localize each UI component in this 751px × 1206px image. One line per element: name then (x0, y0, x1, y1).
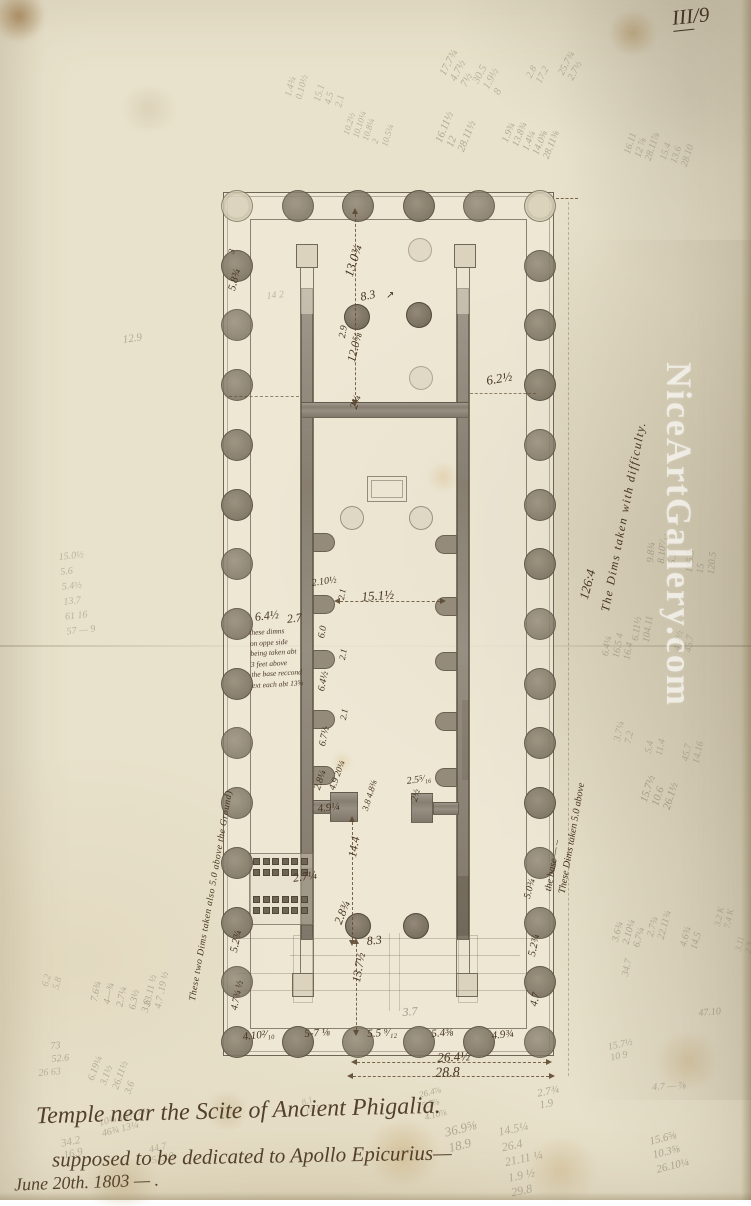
ink-annotation-text: 6.4½ (254, 607, 280, 625)
pencil-note: 1.9¾13.8¾1.4¼14.0⅜28.11⅜ (500, 113, 562, 161)
ink-annotation-text: 2.10½ (311, 575, 337, 589)
ink-annotation-text: 28.8 (435, 1065, 460, 1082)
pencil-note: 30.51.9½8 (470, 61, 512, 97)
ink-annotation: 15.1½ (361, 587, 395, 605)
ink-annotation-text: 6.7½ (317, 725, 332, 747)
ink-annotation: 2.7 (286, 610, 303, 627)
ink-annotation: 6.7½ (317, 725, 332, 747)
pencil-note: 15.0½5.65.4½13.761 1657 — 9 (58, 547, 96, 640)
pencil-note: 6.19¼3.1½26.11½3.6 (85, 1050, 144, 1095)
ink-annotation-text: 5.2¾ (228, 929, 244, 953)
ink-annotation-text: ↗ (386, 290, 394, 301)
ink-annotation: 5.2¾ (228, 929, 244, 953)
ink-annotation-text: 8.3 (359, 287, 377, 305)
pencil-note: 2.7¾1.9 (536, 1083, 563, 1111)
ink-annotation-text: 2¾ (348, 394, 364, 411)
drawing-sheet: III/9 13.0¾2.912.0⅝8.3↗35.8¾6.2½2¾2.10½2… (0, 0, 751, 1200)
ink-annotation: 5.4⅜ (431, 1026, 454, 1040)
ink-annotation-text: 8.3 (366, 932, 382, 948)
ink-annotation: 6.0 (316, 625, 329, 640)
pencil-note: 16.1112 ⅞28.11⅞ (622, 124, 662, 162)
ink-annotation: These two Dims taken also 5.0 above the … (188, 790, 235, 1002)
pencil-note-text: 12.9 (122, 331, 143, 346)
ink-annotation: 2.1 (337, 648, 349, 661)
ink-annotation: 2.9 (337, 325, 350, 339)
ink-annotation: 20¼ (332, 759, 347, 777)
ink-annotation-text: 2.7¼ (292, 868, 318, 886)
watermark: NiceArtGallery.com (658, 362, 700, 707)
pencil-note: 14 2 (266, 289, 285, 302)
ink-annotation-text: 2.5⁵⁄₁₆ (406, 773, 432, 787)
pencil-note: 6.25.8 (40, 973, 64, 991)
pencil-note: 2.7¾22.11¾ (645, 907, 674, 941)
pencil-note: 1.4¾0.10½ (283, 71, 311, 101)
ink-annotation-text: 3 (226, 248, 237, 255)
ink-annotation: 5.5 ⁹⁄₁₂ (367, 1026, 397, 1040)
ink-annotation: 26.4½ (437, 1048, 470, 1066)
pencil-note-text: 14 2 (266, 289, 285, 302)
pencil-note: 15.7½10 9 (607, 1037, 636, 1064)
ink-annotation: 4.9 (327, 776, 342, 792)
ink-note-text: ext each abt 13⅝ (252, 678, 304, 691)
pencil-note: 15.14.52.1 (312, 83, 348, 108)
ink-annotation: 2.1 (336, 588, 348, 601)
ink-annotation-text: 4.9¾ (491, 1028, 514, 1042)
pencil-note: 34.7 (620, 958, 634, 977)
ink-annotation-text: 126:4 (576, 568, 599, 601)
ink-annotation-text: 2.1 (337, 648, 349, 661)
pencil-note: 23.11 ½4.7 .19 ½ (142, 968, 171, 1009)
pencil-note: 3.2 K7.4 K (712, 906, 736, 929)
pencil-note: 15.7½10.626.1½ (638, 774, 681, 811)
ink-annotation-text: 20¼ (332, 759, 347, 777)
pencil-note: 2.817.2 (524, 60, 552, 86)
pencil-note: 47.10 (698, 1006, 721, 1019)
pencil-note: 3.6¾2.10¼6.7¼ (610, 916, 648, 949)
ink-annotation-text: 6.4½ (316, 670, 331, 692)
ink-annotation: 126:4 (576, 568, 599, 601)
ink-annotation: 13.7½ (349, 951, 369, 983)
pencil-note-text: 104.11 (641, 615, 656, 643)
pencil-note-text: 15.0½ (58, 547, 88, 565)
ink-annotation-text: 26.4½ (437, 1048, 470, 1066)
ink-annotation: 6.2½ (485, 368, 513, 388)
pencil-note-text: 26 63 (38, 1066, 61, 1079)
ink-annotation-text: 5.4⅜ (431, 1026, 454, 1040)
ink-annotation: 3 (226, 248, 237, 255)
ink-annotation-text: 13.0¾ (341, 243, 366, 279)
ink-annotation: 5.2¾ (526, 933, 542, 957)
ink-annotation-text: 5.2¾ (526, 933, 542, 957)
pencil-note: 45.714.16 (680, 738, 706, 765)
ink-annotation-text: 3.8 4.8⅜ (360, 779, 379, 812)
ink-annotation-text: 2.1 (338, 708, 350, 721)
ink-annotation-text: 2.9 (337, 325, 350, 339)
pencil-note-text: 120.5 (706, 552, 719, 575)
pencil-note-text: 34.7 (620, 958, 634, 977)
ink-annotation: 2.1 (338, 708, 350, 721)
ink-annotation-text: 6.0 (316, 625, 329, 640)
ink-annotation: 8.3 (359, 287, 377, 305)
ink-annotation: 4.7¾ ½ (229, 980, 246, 1012)
ink-annotation: 28.8 (435, 1065, 460, 1082)
pencil-note: 10.2½10.10¼10.8¼210.5¼ (341, 107, 397, 147)
pencil-note: 26 63 (38, 1066, 61, 1079)
ink-annotation-text: 14.4 (345, 835, 363, 858)
ink-annotation: 2.8¾ (331, 899, 354, 927)
ink-annotation: 5.8¾ (226, 268, 243, 292)
ink-note: these dimnson oppe sidebeing taken abt3 … (249, 625, 303, 691)
ink-annotation-text: The Dims taken with difficulty. (598, 420, 650, 613)
pencil-note-text: 52.6 (51, 1051, 70, 1065)
pencil-note: 5.411.4 (643, 736, 668, 757)
pencil-note: 7352.6 (50, 1038, 70, 1065)
ink-annotation: 5-7 ⅛ (304, 1026, 330, 1040)
ink-annotation: 2¾ (348, 394, 364, 411)
pencil-note: 14.5¼26.421.11 ¼1.9 ½29.8 (497, 1117, 550, 1201)
ink-annotation-text: 4.7 (528, 992, 543, 1008)
ink-annotation-text: These two Dims taken also 5.0 above the … (188, 790, 235, 1002)
ink-annotation-text: 4.10²⁄₁₀ (242, 1028, 275, 1043)
ink-annotation-text: 6.2½ (485, 368, 513, 388)
pencil-note: 15.413.628.10 (658, 137, 696, 169)
sheet-bottom-edge (0, 1192, 751, 1200)
ink-annotation: The Dims taken with difficulty. (598, 420, 650, 613)
ink-annotation-text: 2.1 (336, 588, 348, 601)
pencil-note-text: 11.4 (654, 738, 668, 757)
ink-annotation-text: 5.0¾ (522, 878, 538, 900)
ink-annotation-text: 5-7 ⅛ (304, 1026, 330, 1040)
pencil-note: 25.7¾2.7½ (556, 50, 587, 82)
ink-annotation-text: 5.5 ⁹⁄₁₂ (367, 1026, 397, 1040)
ink-annotation: 2.7¼ (292, 868, 318, 886)
ink-annotation-text: 15.1½ (361, 587, 395, 605)
pencil-note-text: 3.7 (402, 1004, 418, 1020)
ink-annotation: 2½ (409, 788, 423, 803)
ink-annotation: 3.8 4.8⅜ (360, 779, 379, 812)
ink-annotation-text: 4.9¼ (317, 801, 340, 815)
pencil-note: 6.4¼16.5 416.4 (600, 630, 637, 660)
ink-annotation: 4.7 (528, 992, 543, 1008)
ink-annotation: 13.0¾ (341, 243, 366, 279)
pencil-note: 3.7¼7.2 (612, 720, 638, 744)
sheet-right-edge (741, 0, 751, 1200)
ink-annotation: 6.4½ (254, 607, 280, 625)
ink-annotation: 14.4 (345, 835, 363, 858)
ink-annotation-text: 4.7¾ ½ (229, 980, 246, 1012)
ink-annotation-text: 2½ (409, 788, 423, 803)
ink-annotation: the base — –These Dims taken 5.0 above (542, 779, 588, 894)
ink-annotation: 4.9¾ (491, 1028, 514, 1042)
ink-annotation-text: 2.7 (286, 610, 303, 627)
pencil-note: 3.7 (402, 1004, 418, 1020)
ink-annotation: 6.4½ (316, 670, 331, 692)
ink-annotation-text: 2.8¾ (331, 899, 354, 927)
pencil-note: 16.11½1228.11½ (433, 110, 478, 153)
annotations-layer: 13.0¾2.912.0⅝8.3↗35.8¾6.2½2¾2.10½2.115.1… (0, 0, 751, 1200)
pencil-note-text: 5.8 (51, 976, 65, 991)
ink-annotation-text: 4.9 (327, 776, 342, 792)
pencil-note: 4.7 — ⅞ (652, 1080, 686, 1093)
ink-annotation-text: 13.7½ (349, 951, 369, 983)
pencil-note: 12.9 (122, 331, 143, 346)
ink-annotation: 2.5⁵⁄₁₆ (406, 773, 432, 787)
ink-annotation-text: 5.8¾ (226, 268, 243, 292)
ink-annotation: 8.3 (366, 932, 382, 948)
pencil-note-text: 57 — 9 (66, 622, 96, 640)
pencil-note: 4.6¾14.5 (678, 926, 704, 951)
ink-annotation: 5.0¾ (522, 878, 538, 900)
ink-annotation: 2.10½ (311, 575, 337, 589)
ink-annotation: 4.9¼ (317, 801, 340, 815)
pencil-note-text: 4.7 — ⅞ (652, 1080, 686, 1093)
pencil-note-text: 47.10 (698, 1006, 721, 1019)
ink-annotation: 4.10²⁄₁₀ (242, 1028, 275, 1043)
pencil-note: 15.6⅝10.3⅝26.10¼ (648, 1127, 690, 1177)
ink-annotation: ↗ (386, 290, 394, 301)
